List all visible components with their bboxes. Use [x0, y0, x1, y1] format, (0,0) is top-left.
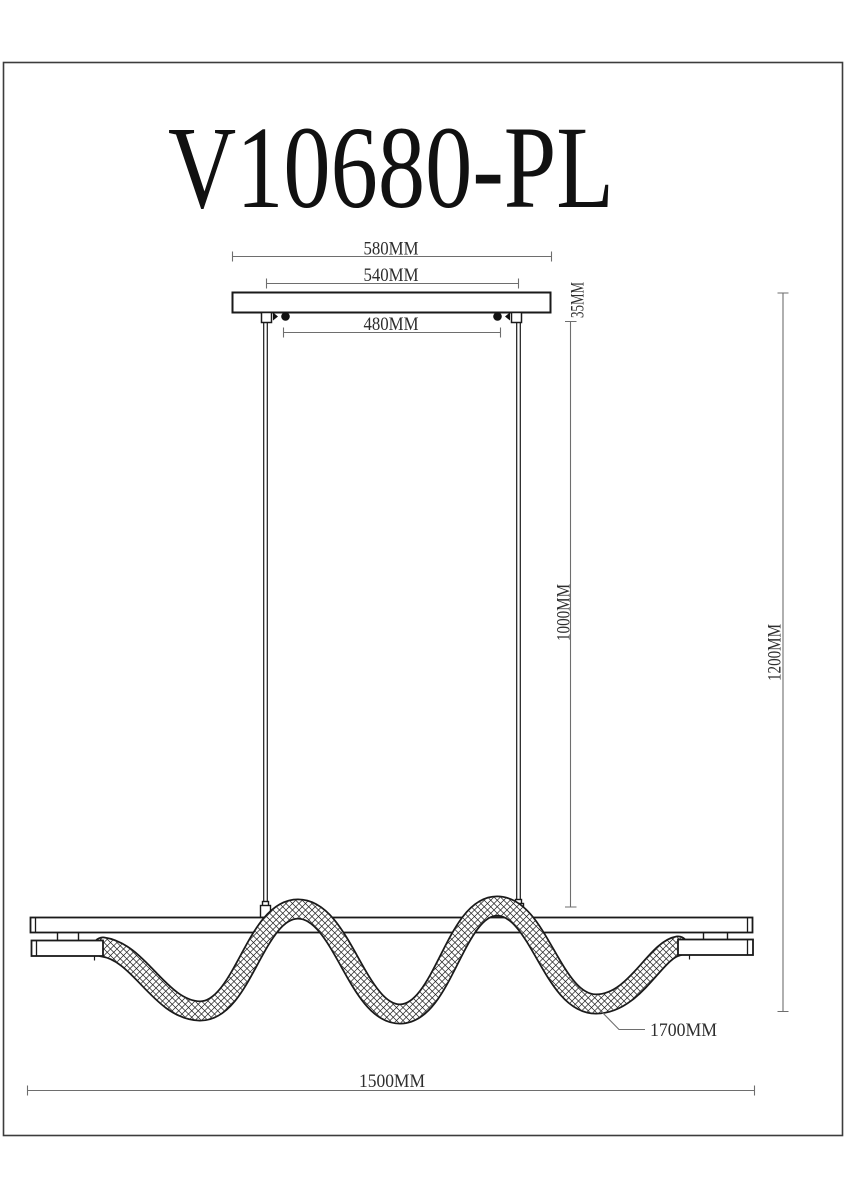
- drawing-sheet: V10680-PL: [0, 0, 848, 1200]
- dim-label-canopy-width: 580MM: [364, 239, 419, 260]
- end-segment-left: [32, 941, 104, 957]
- cable-gland-right: [512, 313, 522, 323]
- gland-clip-right: [505, 313, 510, 321]
- light-bar: [31, 918, 753, 933]
- technical-drawing-canvas: V10680-PL: [0, 0, 848, 1200]
- end-segment-right: [678, 940, 753, 956]
- dim-label-canopy-inner-width: 540MM: [364, 265, 419, 286]
- dim-label-overall-height: 1200MM: [765, 624, 786, 681]
- canopy-screw-right: [493, 312, 502, 321]
- dim-label-cable-drop: 1000MM: [554, 584, 575, 641]
- dim-label-flex-tube-length: 1700MM: [650, 1020, 717, 1041]
- canopy-screw-left: [281, 312, 290, 321]
- dim-label-canopy-height: 35MM: [568, 282, 589, 318]
- dim-label-suspension-spacing: 480MM: [364, 314, 419, 335]
- dim-label-bar-length: 1500MM: [359, 1071, 425, 1092]
- dimension-labels: 580MM 540MM 480MM 35MM 1000MM 1200MM 170…: [359, 239, 786, 1093]
- fixture-drawing: [31, 293, 754, 1015]
- cable-gland-left: [262, 313, 272, 323]
- model-number-title: V10680-PL: [168, 102, 614, 233]
- suspension-cable-left: [264, 323, 268, 918]
- ceiling-canopy: [233, 293, 551, 313]
- gland-clip-left: [273, 313, 278, 321]
- suspension-cable-right: [517, 323, 521, 906]
